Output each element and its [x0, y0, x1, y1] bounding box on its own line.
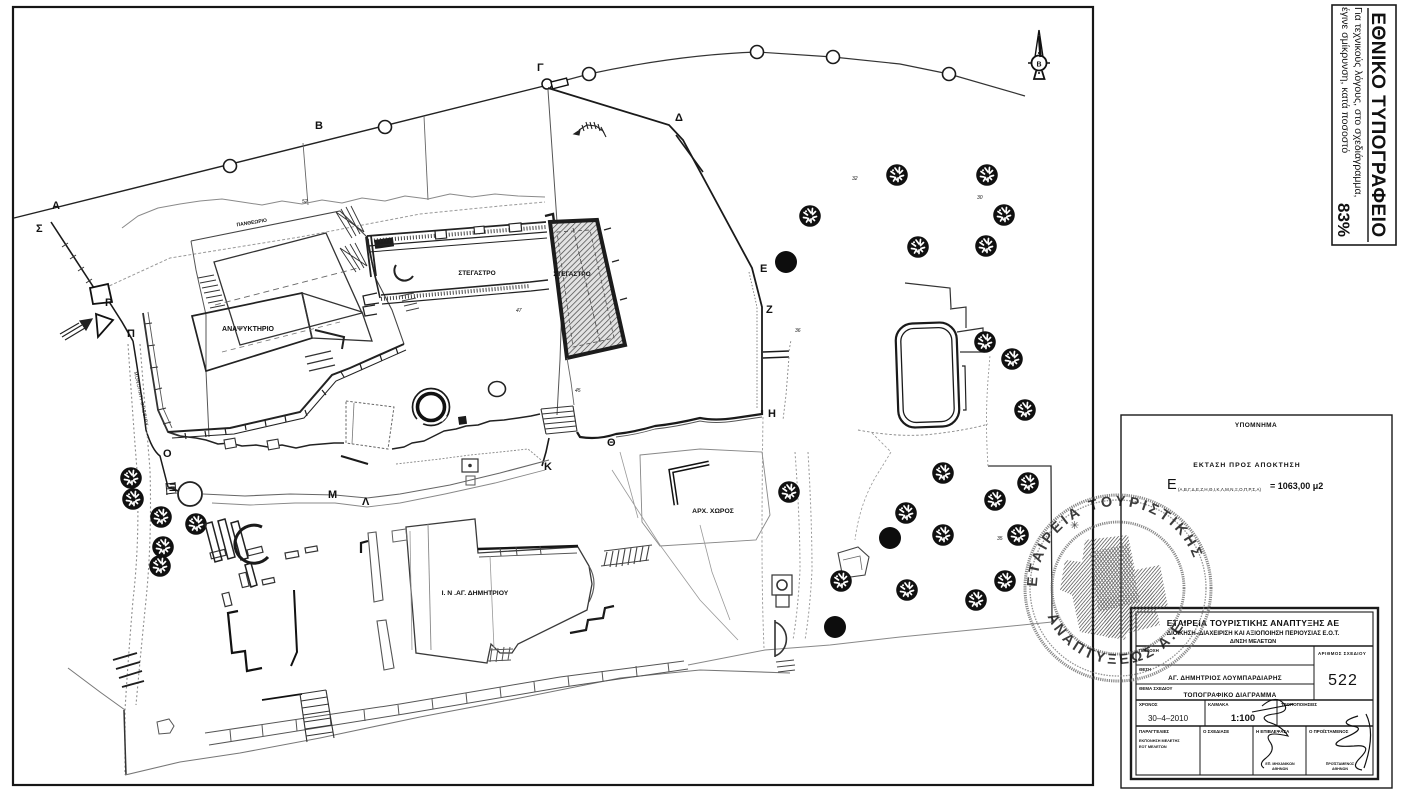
svg-text:B: B	[315, 120, 323, 132]
svg-text:M: M	[328, 489, 337, 501]
svg-text:έγινε σμίκρυνση, κατά ποσοστό: έγινε σμίκρυνση, κατά ποσοστό	[1339, 7, 1351, 153]
svg-text:Δ/ΝΣΗ ΜΕΛΕΤΩΝ: Δ/ΝΣΗ ΜΕΛΕΤΩΝ	[1230, 639, 1276, 645]
svg-text:K: K	[544, 461, 552, 473]
svg-text:ΣΤΕΓΑΣΤΡΟ: ΣΤΕΓΑΣΤΡΟ	[553, 271, 590, 278]
svg-text:ΕΘΝΙΚΟ ΤΥΠΟΓΡΑΦΕΙΟ: ΕΘΝΙΚΟ ΤΥΠΟΓΡΑΦΕΙΟ	[1367, 12, 1388, 237]
svg-text:B: B	[1036, 62, 1041, 69]
svg-text:Z: Z	[766, 304, 773, 316]
svg-text:ΥΠΟΜΝΗΜΑ: ΥΠΟΜΝΗΜΑ	[1235, 422, 1277, 429]
svg-text:P: P	[105, 297, 112, 309]
svg-text:83%: 83%	[1334, 203, 1353, 237]
svg-text:ΑΡΧ. ΧΩΡΟΣ: ΑΡΧ. ΧΩΡΟΣ	[692, 508, 734, 515]
svg-text:ΚΛΙΜΑΚΑ: ΚΛΙΜΑΚΑ	[1208, 702, 1229, 707]
svg-text:Ο ΠΡΟΪΣΤΑΜΕΝΟΣ: Ο ΠΡΟΪΣΤΑΜΕΝΟΣ	[1309, 729, 1349, 734]
svg-text:Θ: Θ	[607, 437, 616, 449]
svg-text:✳: ✳	[1070, 520, 1079, 532]
svg-text:Ο ΣΧΕΔΙΑΣΕ: Ο ΣΧΕΔΙΑΣΕ	[1203, 729, 1229, 734]
svg-text:H: H	[768, 408, 776, 420]
svg-text:52: 52	[302, 199, 308, 205]
svg-text:Δ: Δ	[675, 112, 683, 124]
svg-text:ΠΡΟΪΣΤΑΜΕΝΟΣ: ΠΡΟΪΣΤΑΜΕΝΟΣ	[1326, 762, 1355, 766]
svg-text:ΤΟΠΟΓΡΑΦΙΚΟ ΔΙΑΓΡΑΜΜΑ: ΤΟΠΟΓΡΑΦΙΚΟ ΔΙΑΓΡΑΜΜΑ	[1183, 692, 1276, 699]
svg-text:32: 32	[852, 176, 858, 182]
svg-text:35: 35	[997, 536, 1003, 542]
svg-text:Σ: Σ	[36, 223, 43, 235]
svg-text:ΕΚΠΟΝΗΣΗ ΜΕΛΕΤΗΣ: ΕΚΠΟΝΗΣΗ ΜΕΛΕΤΗΣ	[1139, 739, 1180, 743]
svg-text:ΤΡΟΠΟΠΟΙΗΣΕΙΣ: ΤΡΟΠΟΠΟΙΗΣΕΙΣ	[1281, 702, 1317, 707]
svg-text:30: 30	[977, 195, 983, 201]
svg-text:522: 522	[1328, 672, 1358, 689]
svg-text:ΑΓ. ΔΗΜΗΤΡΙΟΣ ΛΟΥΜΠΑΡΔΙΑΡΗΣ: ΑΓ. ΔΗΜΗΤΡΙΟΣ ΛΟΥΜΠΑΡΔΙΑΡΗΣ	[1168, 675, 1282, 682]
svg-text:ΑΝΑΨΥΚΤΗΡΙΟ: ΑΝΑΨΥΚΤΗΡΙΟ	[222, 326, 274, 333]
svg-text:1:100: 1:100	[1231, 713, 1255, 724]
svg-text:Για τεχνικούς λόγους, στο σχεδ: Για τεχνικούς λόγους, στο σχεδιάγραμμα,	[1352, 7, 1364, 197]
svg-text:ΑΡΙΘΜΟΣ ΣΧΕΔΙΟΥ: ΑΡΙΘΜΟΣ ΣΧΕΔΙΟΥ	[1318, 651, 1366, 656]
svg-text:ΕΤΑΙΡΕΙΑ ΤΟΥΡΙΣΤΙΚΗΣ ΑΝΑΠΤΥΞΗΣ: ΕΤΑΙΡΕΙΑ ΤΟΥΡΙΣΤΙΚΗΣ ΑΝΑΠΤΥΞΗΣ ΑΕ	[1167, 618, 1340, 628]
svg-text:Ε: Ε	[1167, 477, 1177, 493]
svg-text:ΕΠ. ΜΗΧΑΝΙΚΩΝ: ΕΠ. ΜΗΧΑΝΙΚΩΝ	[1265, 762, 1295, 766]
svg-text:Λ: Λ	[362, 496, 370, 508]
svg-text:A: A	[52, 200, 60, 212]
svg-text:ΠΑΡΑΓΓΕΛΙΕΣ: ΠΑΡΑΓΓΕΛΙΕΣ	[1139, 729, 1169, 734]
svg-text:ΕΚΤΑΣΗ ΠΡΟΣ ΑΠΟΚΤΗΣΗ: ΕΚΤΑΣΗ ΠΡΟΣ ΑΠΟΚΤΗΣΗ	[1193, 462, 1300, 469]
svg-text:Γ: Γ	[537, 62, 544, 74]
svg-text:30–4–2010: 30–4–2010	[1148, 714, 1189, 723]
svg-text:Ι. Ν .ΑΓ. ΔΗΜΗΤΡΙΟΥ: Ι. Ν .ΑΓ. ΔΗΜΗΤΡΙΟΥ	[442, 590, 509, 597]
svg-text:E: E	[760, 263, 767, 275]
svg-text:45: 45	[575, 388, 581, 394]
svg-text:O: O	[163, 448, 172, 460]
svg-text:ΕΟΤ ΜΕΛΕΤΩΝ: ΕΟΤ ΜΕΛΕΤΩΝ	[1139, 745, 1167, 749]
svg-text:ΧΡΟΝΟΣ: ΧΡΟΝΟΣ	[1139, 702, 1158, 707]
svg-text:ΑΘΗΝΩΝ: ΑΘΗΝΩΝ	[1272, 767, 1288, 771]
svg-text:Ξ: Ξ	[169, 482, 176, 494]
svg-text:(Α,Β,Γ,Δ,Ε,Ζ,Η,Θ,Ι,Κ,Λ,Μ,Ν,Ξ,Ο: (Α,Β,Γ,Δ,Ε,Ζ,Η,Θ,Ι,Κ,Λ,Μ,Ν,Ξ,Ο,Π,Ρ,Σ,Α)	[1178, 487, 1261, 492]
svg-text:ΘΕΜΑ ΣΧΕΔΙΟΥ: ΘΕΜΑ ΣΧΕΔΙΟΥ	[1139, 686, 1173, 691]
svg-text:ΑΘΗΝΩΝ: ΑΘΗΝΩΝ	[1332, 767, 1348, 771]
svg-text:ΣΤΕΓΑΣΤΡΟ: ΣΤΕΓΑΣΤΡΟ	[458, 270, 495, 277]
svg-text:Π: Π	[127, 328, 135, 340]
svg-text:47: 47	[516, 308, 522, 314]
svg-text:36: 36	[795, 328, 801, 334]
svg-text:= 1063,00 μ2: = 1063,00 μ2	[1270, 481, 1323, 491]
